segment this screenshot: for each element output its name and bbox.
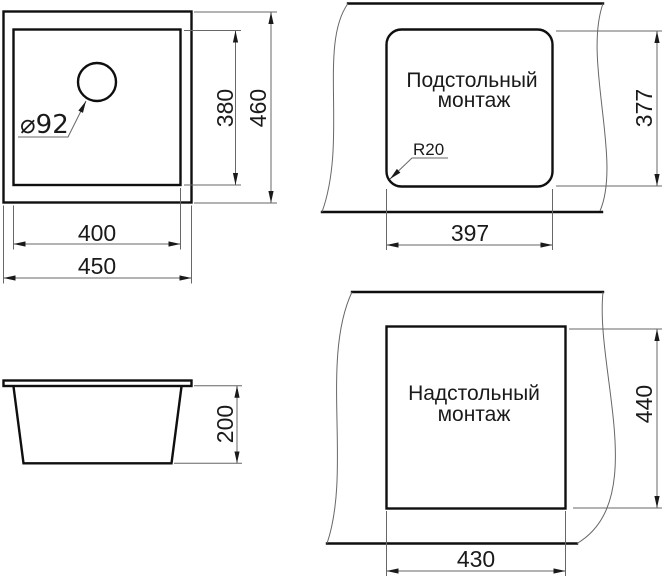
outer-width-label: 450 bbox=[78, 253, 116, 279]
topmount-label-line1: Надстольный bbox=[408, 382, 540, 405]
drain-hole bbox=[78, 63, 116, 101]
sink-flange-profile bbox=[4, 381, 192, 387]
sink-bowl-outline bbox=[14, 30, 181, 186]
break-line-right bbox=[577, 292, 615, 544]
sink-dimension-drawing: ⌀92 400 450 380 460 200 bbox=[0, 0, 665, 580]
topmount-view: Надстольный монтаж 430 440 bbox=[327, 292, 662, 576]
sink-body-profile bbox=[14, 387, 182, 464]
depth-label: 200 bbox=[212, 405, 238, 443]
break-line-right bbox=[597, 4, 607, 212]
break-line-left bbox=[327, 292, 352, 544]
inner-height-label: 380 bbox=[212, 89, 238, 127]
corner-radius-leader-line bbox=[390, 158, 448, 179]
outer-height-label: 460 bbox=[245, 89, 271, 127]
sink-outer-rim-outline bbox=[4, 12, 192, 203]
inner-width-label: 400 bbox=[78, 220, 116, 246]
plan-view: ⌀92 400 450 380 460 bbox=[4, 12, 278, 284]
corner-radius-label: R20 bbox=[413, 140, 444, 159]
topmount-height-label: 440 bbox=[631, 385, 657, 423]
undermount-width-label: 397 bbox=[451, 220, 489, 246]
topmount-width-label: 430 bbox=[457, 546, 495, 572]
drain-diameter-label: ⌀92 bbox=[20, 110, 69, 140]
side-view: 200 bbox=[4, 381, 243, 464]
topmount-label-line2: монтаж bbox=[438, 403, 511, 426]
technical-drawing-canvas: ⌀92 400 450 380 460 200 bbox=[0, 0, 665, 580]
undermount-view: Подстольный монтаж R20 397 377 bbox=[322, 4, 662, 251]
break-line-left bbox=[322, 4, 348, 213]
undermount-height-label: 377 bbox=[631, 89, 657, 127]
undermount-label-line2: монтаж bbox=[438, 89, 511, 112]
